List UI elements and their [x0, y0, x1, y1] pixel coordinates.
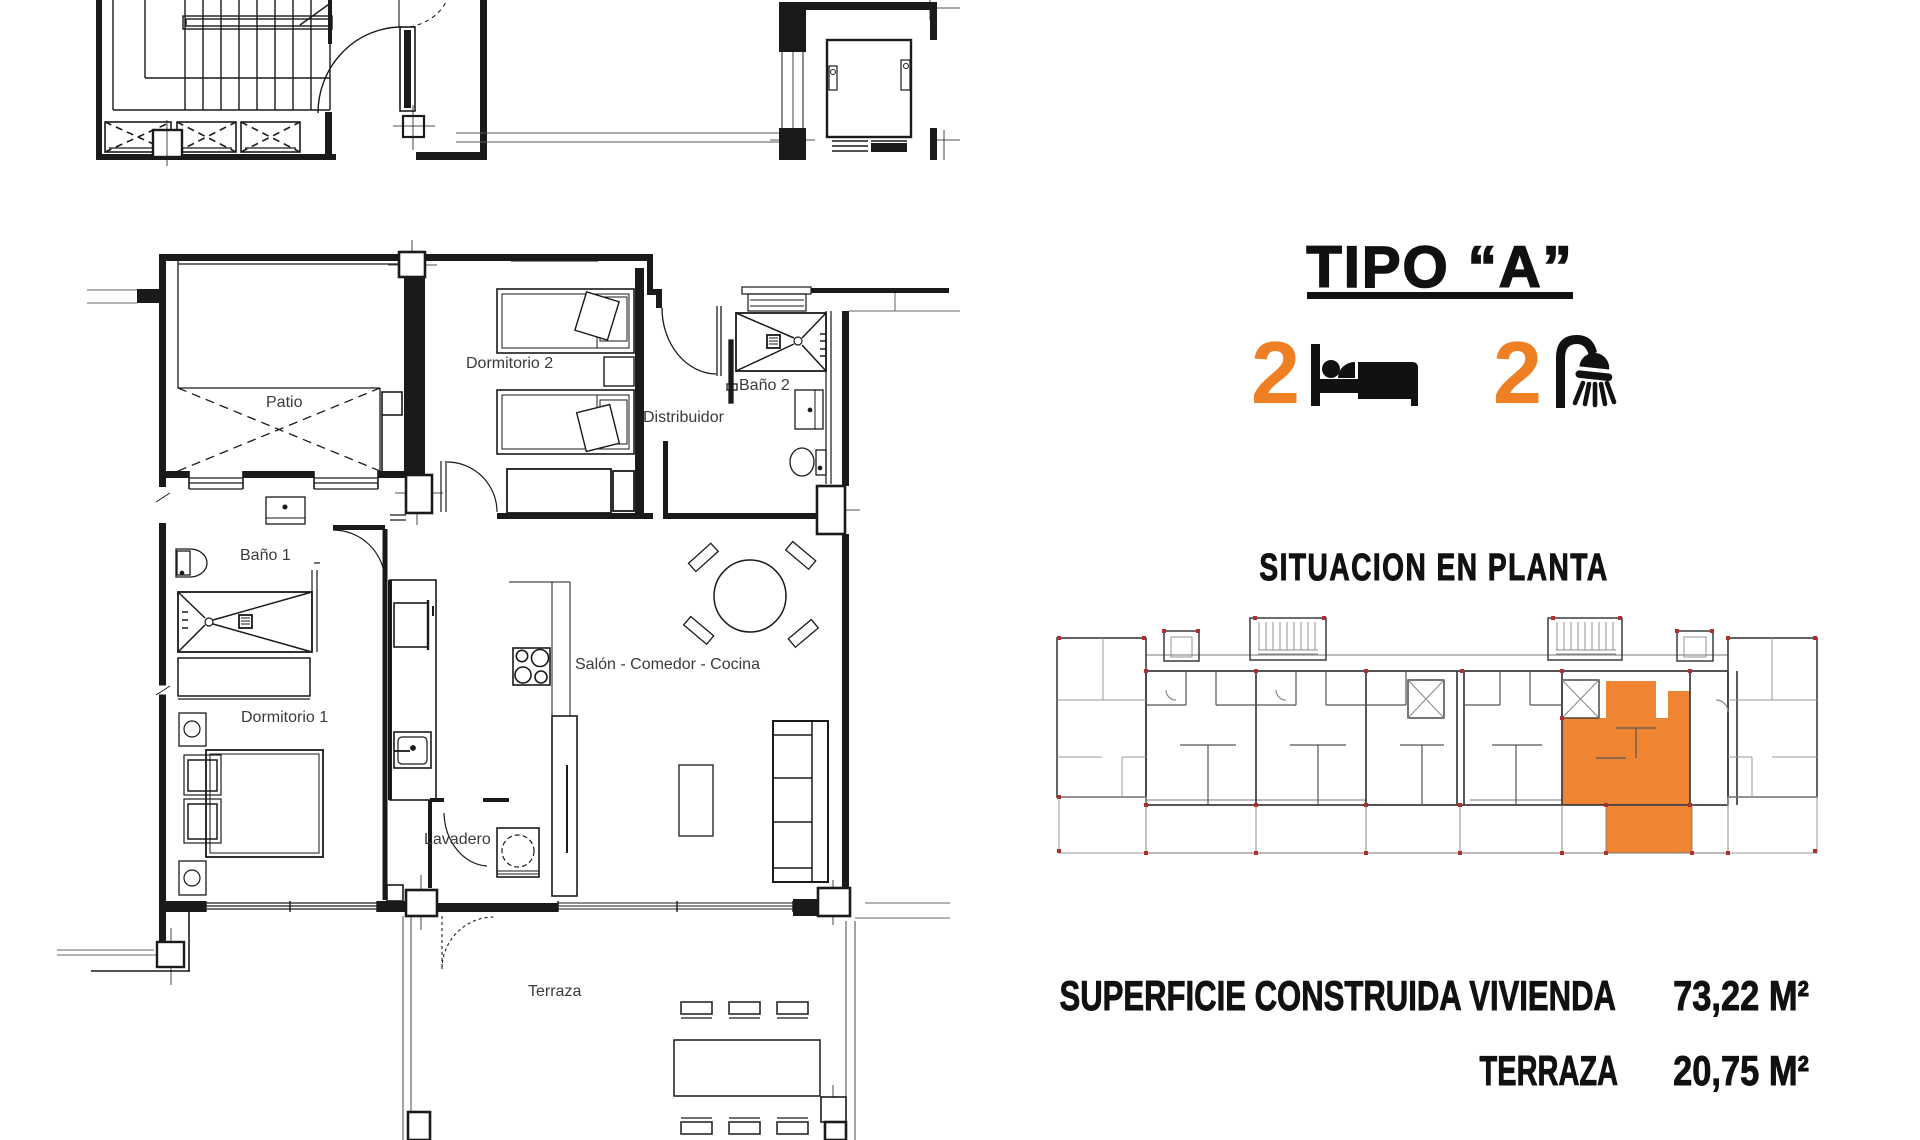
svg-text:Baño 1: Baño 1 [240, 547, 291, 564]
svg-text:TIPO “A”: TIPO “A” [1306, 235, 1573, 300]
svg-text:Dormitorio 1: Dormitorio 1 [241, 709, 328, 726]
svg-text:Distribuidor: Distribuidor [643, 409, 725, 426]
svg-text:2: 2 [1493, 323, 1542, 422]
svg-text:Terraza: Terraza [528, 983, 581, 1000]
svg-text:Baño 2: Baño 2 [739, 377, 790, 394]
svg-text:73,22 M²: 73,22 M² [1673, 973, 1809, 1020]
svg-text:SUPERFICIE CONSTRUIDA VIVIENDA: SUPERFICIE CONSTRUIDA VIVIENDA [1059, 972, 1616, 1019]
svg-text:Patio: Patio [266, 394, 303, 411]
svg-text:TERRAZA: TERRAZA [1480, 1047, 1618, 1095]
svg-text:Dormitorio 2: Dormitorio 2 [466, 355, 553, 372]
svg-text:20,75 M²: 20,75 M² [1673, 1048, 1809, 1095]
svg-text:2: 2 [1251, 323, 1300, 422]
svg-text:Lavadero: Lavadero [424, 831, 491, 848]
svg-text:Salón - Comedor - Cocina: Salón - Comedor - Cocina [575, 656, 760, 673]
svg-text:SITUACION EN PLANTA: SITUACION EN PLANTA [1259, 547, 1608, 589]
